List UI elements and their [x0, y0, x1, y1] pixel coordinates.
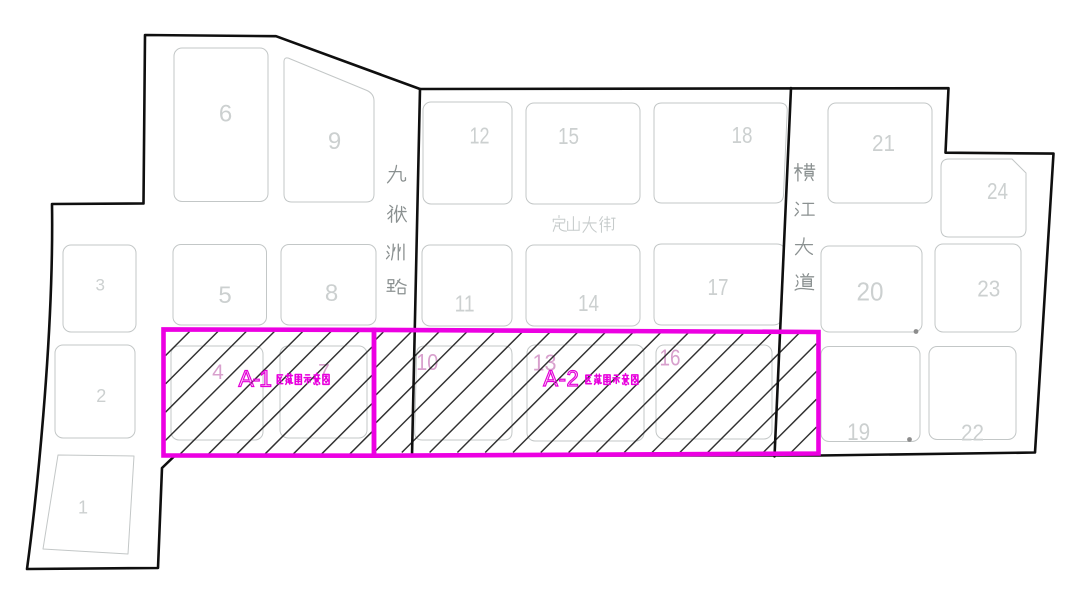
svg-text:18: 18	[732, 122, 753, 148]
svg-text:8: 8	[325, 280, 338, 307]
svg-text:3: 3	[95, 276, 104, 295]
svg-text:22: 22	[961, 419, 984, 445]
svg-text:19: 19	[847, 419, 870, 446]
svg-text:20: 20	[857, 277, 884, 307]
svg-text:9: 9	[328, 128, 341, 155]
svg-text:17: 17	[708, 274, 729, 300]
svg-text:15: 15	[558, 123, 579, 149]
svg-text:A-1: A-1	[239, 365, 272, 391]
svg-text:21: 21	[872, 130, 895, 156]
svg-text:A-2: A-2	[543, 366, 579, 391]
svg-text:11: 11	[455, 291, 475, 317]
svg-text:23: 23	[977, 276, 1000, 302]
svg-text:24: 24	[987, 178, 1008, 204]
svg-text:2: 2	[96, 386, 106, 406]
svg-text:6: 6	[219, 101, 232, 128]
svg-text:14: 14	[578, 290, 599, 316]
svg-text:1: 1	[78, 497, 88, 517]
svg-text:5: 5	[218, 282, 231, 309]
svg-text:12: 12	[470, 123, 490, 149]
